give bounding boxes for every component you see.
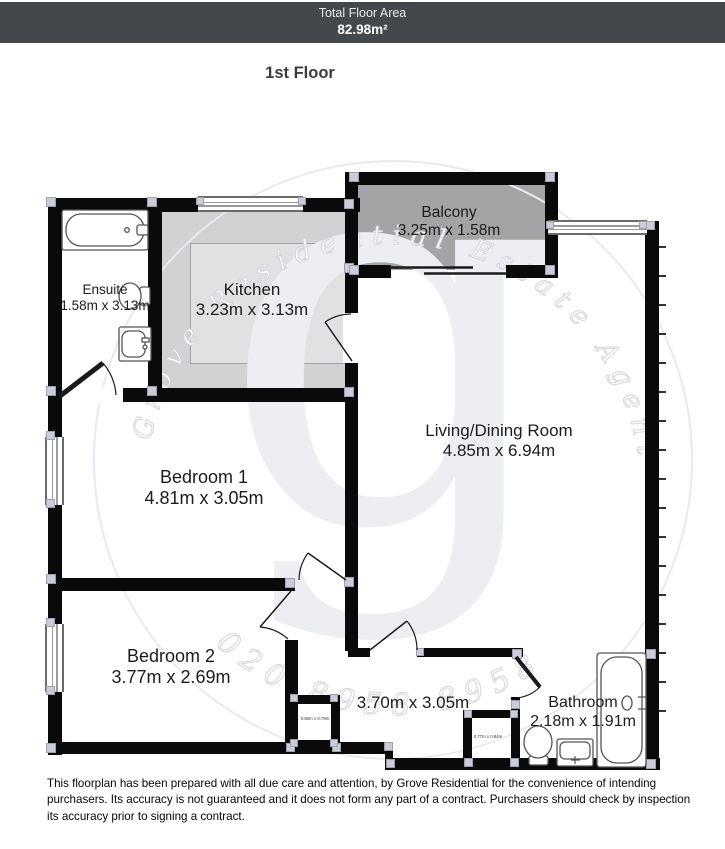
banner-label: Total Floor Area (319, 6, 407, 22)
ensuite-door-leaf (60, 363, 103, 396)
floorplan-page: Total Floor Area 82.98m² 1st Floor g Gro… (0, 0, 725, 849)
room-dims: 3.70m x 3.05m (357, 693, 469, 713)
bedroom1-label: Bedroom 1 4.81m x 3.05m (144, 467, 263, 509)
bathroom-door-leaf (516, 657, 540, 687)
bedroom2-door-swing (260, 627, 288, 639)
room-dims: 4.81m x 3.05m (144, 488, 263, 509)
bedroom2-door-leaf (260, 591, 291, 627)
room-name: Bathroom (530, 694, 636, 713)
room-name: Living/Dining Room (425, 421, 572, 441)
kitchen-label: Kitchen 3.23m x 3.13m (196, 280, 308, 319)
floor-title: 1st Floor (0, 64, 600, 83)
bedroom2-store-label: 0.80m x 0.79m (301, 717, 330, 722)
ensuite-sink (119, 327, 151, 361)
room-dims: 0.80m x 0.79m (301, 717, 330, 722)
bedroom1-door-swing (299, 553, 308, 580)
hall-store-label: 0.77m x 0.84m (474, 735, 503, 740)
room-name: Bedroom 2 (111, 646, 230, 667)
living-room-label: Living/Dining Room 4.85m x 6.94m (425, 421, 572, 460)
ensuite-label: Ensuite 1.58m x 3.13m (60, 282, 149, 313)
living-door-leaf (370, 621, 407, 650)
room-dims: 3.77m x 2.69m (111, 667, 230, 688)
room-dims: 2.18m x 1.91m (530, 713, 636, 732)
bathroom-label: Bathroom 2.18m x 1.91m (530, 694, 636, 731)
room-dims: 3.25m x 1.58m (398, 222, 501, 240)
room-name: Kitchen (196, 280, 308, 300)
hallway-label: 3.70m x 3.05m (357, 693, 469, 713)
living-door-swing (407, 621, 417, 650)
room-dims: 0.77m x 0.84m (474, 735, 503, 740)
room-dims: 4.85m x 6.94m (425, 441, 572, 461)
disclaimer-text: This floorplan has been prepared with al… (47, 776, 701, 825)
bedroom1-door-leaf (308, 553, 346, 580)
total-floor-area-banner: Total Floor Area 82.98m² (0, 2, 725, 43)
room-dims: 3.23m x 3.13m (196, 300, 308, 320)
room-name: Ensuite (60, 282, 149, 298)
room-dims: 1.58m x 3.13m (60, 298, 149, 314)
room-name: Balcony (398, 204, 501, 222)
ensuite-door-swing (103, 363, 116, 395)
bedroom2-label: Bedroom 2 3.77m x 2.69m (111, 646, 230, 688)
banner-value: 82.98m² (337, 22, 387, 39)
bathroom-toilet (524, 726, 552, 765)
room-name: Bedroom 1 (144, 467, 263, 488)
kitchen-door-leaf (325, 322, 352, 361)
bathroom-sink (557, 739, 593, 766)
ensuite-bathtub (62, 210, 148, 250)
kitchen-door-swing (325, 314, 351, 322)
balcony-label: Balcony 3.25m x 1.58m (398, 204, 501, 240)
